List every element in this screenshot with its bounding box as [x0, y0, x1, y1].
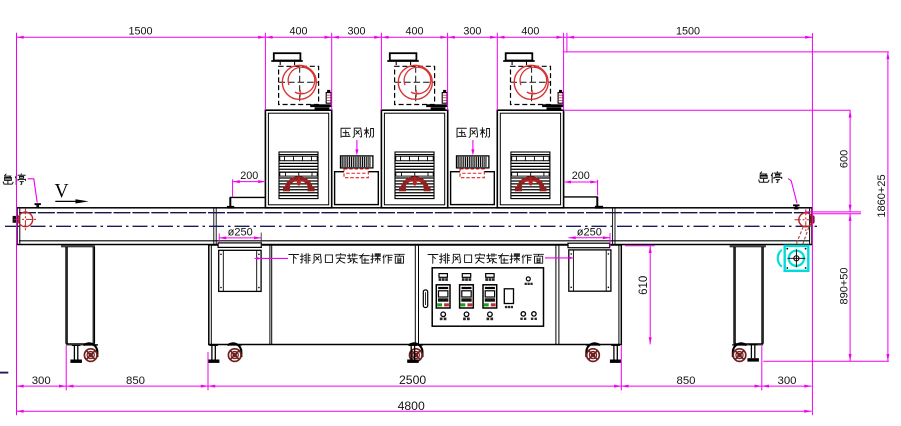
svg-text:1500: 1500	[676, 25, 700, 37]
svg-text:890+50: 890+50	[838, 267, 850, 304]
svg-text:ø250: ø250	[228, 227, 253, 239]
svg-text:V: V	[55, 181, 69, 202]
svg-text:300: 300	[32, 375, 51, 387]
svg-text:400: 400	[289, 25, 307, 37]
svg-text:1860+25: 1860+25	[876, 174, 888, 217]
svg-text:610: 610	[638, 276, 650, 295]
svg-text:400: 400	[521, 25, 539, 37]
svg-text:300: 300	[463, 25, 481, 37]
svg-text:2500: 2500	[399, 373, 426, 387]
svg-text:600: 600	[838, 150, 850, 168]
svg-text:1500: 1500	[128, 25, 152, 37]
svg-text:ø250: ø250	[577, 226, 602, 238]
svg-text:200: 200	[240, 170, 258, 182]
svg-text:400: 400	[405, 25, 423, 37]
svg-text:200: 200	[572, 170, 590, 182]
svg-text:300: 300	[777, 375, 796, 387]
svg-text:300: 300	[347, 25, 365, 37]
svg-text:4800: 4800	[398, 399, 425, 413]
svg-text:850: 850	[676, 375, 695, 387]
svg-text:850: 850	[126, 375, 145, 387]
